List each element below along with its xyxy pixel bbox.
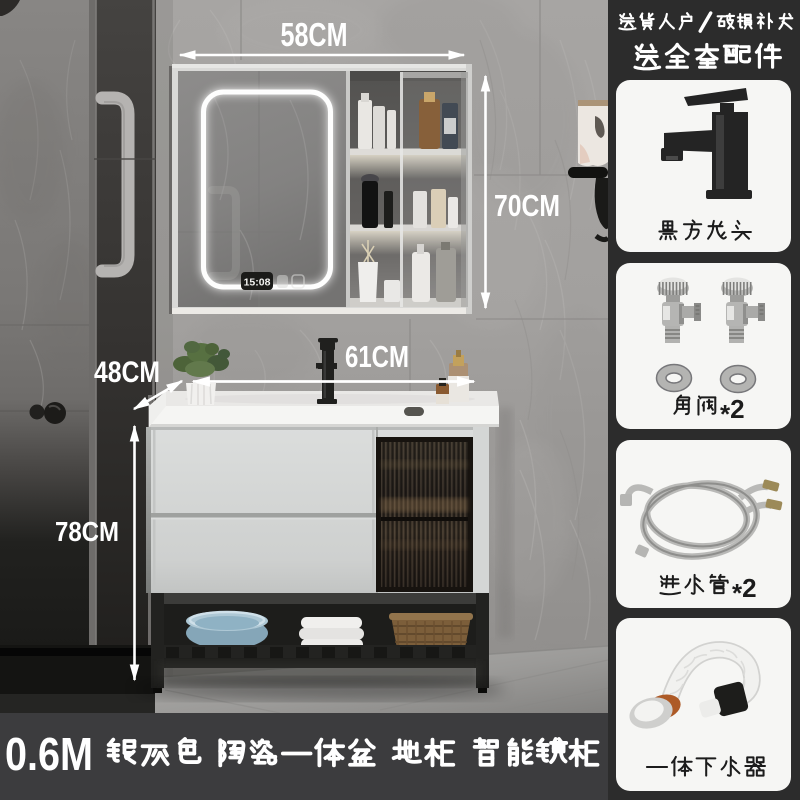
svg-text:61CM: 61CM	[345, 339, 409, 374]
svg-text:78CM: 78CM	[55, 516, 119, 547]
svg-text:70CM: 70CM	[494, 188, 560, 223]
svg-text:58CM: 58CM	[281, 16, 348, 53]
svg-text:*2: *2	[732, 573, 757, 608]
svg-text:0.6M: 0.6M	[5, 728, 93, 780]
svg-text:15:08: 15:08	[244, 277, 271, 289]
svg-text:48CM: 48CM	[94, 356, 160, 389]
svg-text:*2: *2	[720, 394, 745, 429]
